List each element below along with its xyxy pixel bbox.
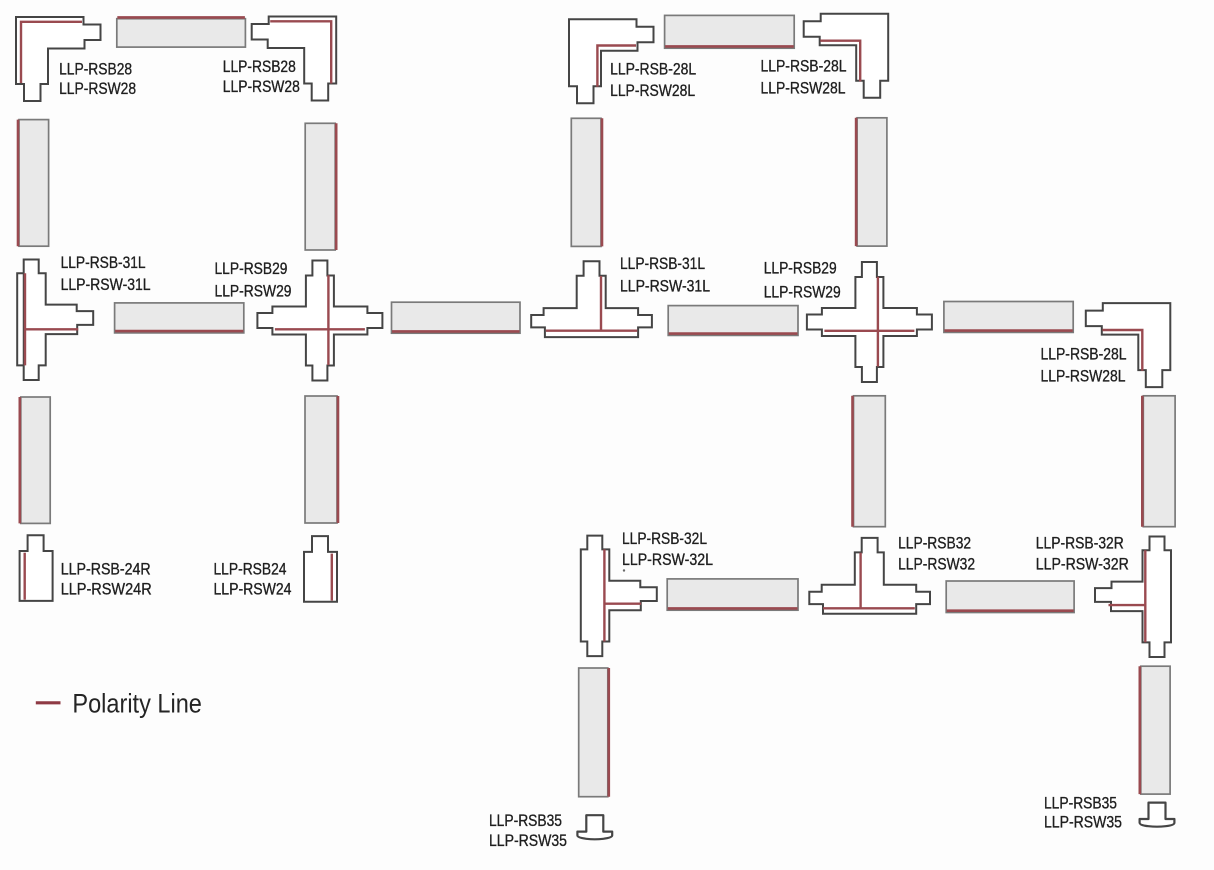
- svg-text:LLP-RSW28L: LLP-RSW28L: [610, 81, 695, 100]
- svg-text:LLP-RSB35: LLP-RSB35: [489, 811, 562, 830]
- svg-text:LLP-RSB29: LLP-RSB29: [764, 258, 837, 277]
- svg-text:LLP-RSW29: LLP-RSW29: [764, 283, 841, 302]
- svg-text:LLP-RSW24R: LLP-RSW24R: [61, 580, 152, 599]
- svg-text:LLP-RSB28: LLP-RSB28: [59, 59, 132, 78]
- svg-text:LLP-RSW28: LLP-RSW28: [59, 79, 136, 98]
- svg-text:LLP-RSW32: LLP-RSW32: [898, 555, 975, 574]
- svg-text:LLP-RSB29: LLP-RSB29: [215, 259, 288, 278]
- svg-text:LLP-RSB24: LLP-RSB24: [214, 560, 287, 579]
- svg-text:LLP-RSB-31L: LLP-RSB-31L: [620, 254, 705, 273]
- svg-text:LLP-RSW-32R: LLP-RSW-32R: [1036, 555, 1129, 574]
- svg-text:LLP-RSW24: LLP-RSW24: [214, 580, 292, 599]
- svg-text:LLP-RSW-32L: LLP-RSW-32L: [622, 550, 713, 569]
- svg-text:LLP-RSW-31L: LLP-RSW-31L: [620, 276, 710, 295]
- svg-text:LLP-RSW28L: LLP-RSW28L: [1041, 367, 1126, 386]
- svg-text:LLP-RSB-32R: LLP-RSB-32R: [1036, 533, 1124, 552]
- svg-text:LLP-RSW28L: LLP-RSW28L: [761, 79, 846, 98]
- svg-text:LLP-RSW29: LLP-RSW29: [215, 282, 292, 301]
- svg-text:LLP-RSB-24R: LLP-RSB-24R: [61, 560, 151, 579]
- svg-text:LLP-RSW35: LLP-RSW35: [1044, 813, 1122, 832]
- svg-text:LLP-RSB-28L: LLP-RSB-28L: [1041, 345, 1127, 364]
- svg-text:LLP-RSB-28L: LLP-RSB-28L: [761, 57, 847, 76]
- svg-text:LLP-RSB-32L: LLP-RSB-32L: [622, 529, 707, 548]
- svg-text:LLP-RSW-31L: LLP-RSW-31L: [61, 275, 151, 294]
- svg-text:Polarity Line: Polarity Line: [72, 689, 202, 719]
- svg-text:LLP-RSB35: LLP-RSB35: [1044, 793, 1117, 812]
- svg-text:LLP-RSW35: LLP-RSW35: [489, 831, 567, 850]
- svg-text:LLP-RSB-31L: LLP-RSB-31L: [61, 253, 146, 272]
- svg-text:LLP-RSB-28L: LLP-RSB-28L: [610, 59, 696, 78]
- svg-text:LLP-RSB32: LLP-RSB32: [898, 533, 971, 552]
- svg-text:LLP-RSB28: LLP-RSB28: [223, 57, 296, 76]
- svg-text:LLP-RSW28: LLP-RSW28: [223, 77, 300, 96]
